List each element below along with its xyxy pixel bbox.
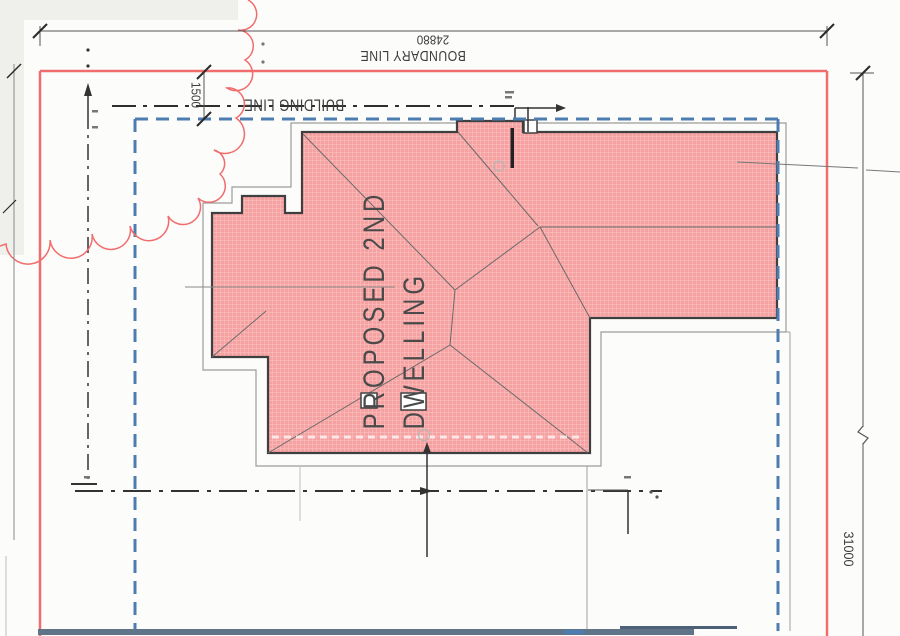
proposed-dwelling-label-line2: DWELLING xyxy=(395,191,435,430)
building-line-label: BUILDING LINE xyxy=(244,95,345,114)
boundary-line-label: BOUNDARY LINE xyxy=(360,47,466,63)
dimension-setback-value: 1500 xyxy=(189,82,204,108)
left-centerline xyxy=(71,48,97,484)
dimension-top-value: 24880 xyxy=(417,33,450,48)
section-marker-bar xyxy=(511,128,515,168)
bottom-band xyxy=(38,626,737,635)
site-plan-linework xyxy=(0,0,900,636)
dimension-right-value: 31000 xyxy=(841,531,857,566)
horizontal-centerline xyxy=(75,487,662,534)
chimney xyxy=(524,120,537,133)
proposed-dwelling-label: PROPOSED 2ND DWELLING xyxy=(355,191,435,430)
site-plan-drawing: 24880 BOUNDARY LINE BUILDING LINE 1500 3… xyxy=(0,0,900,636)
proposed-dwelling-label-line1: PROPOSED 2ND xyxy=(355,191,395,430)
dimension-break-symbol xyxy=(856,426,870,444)
